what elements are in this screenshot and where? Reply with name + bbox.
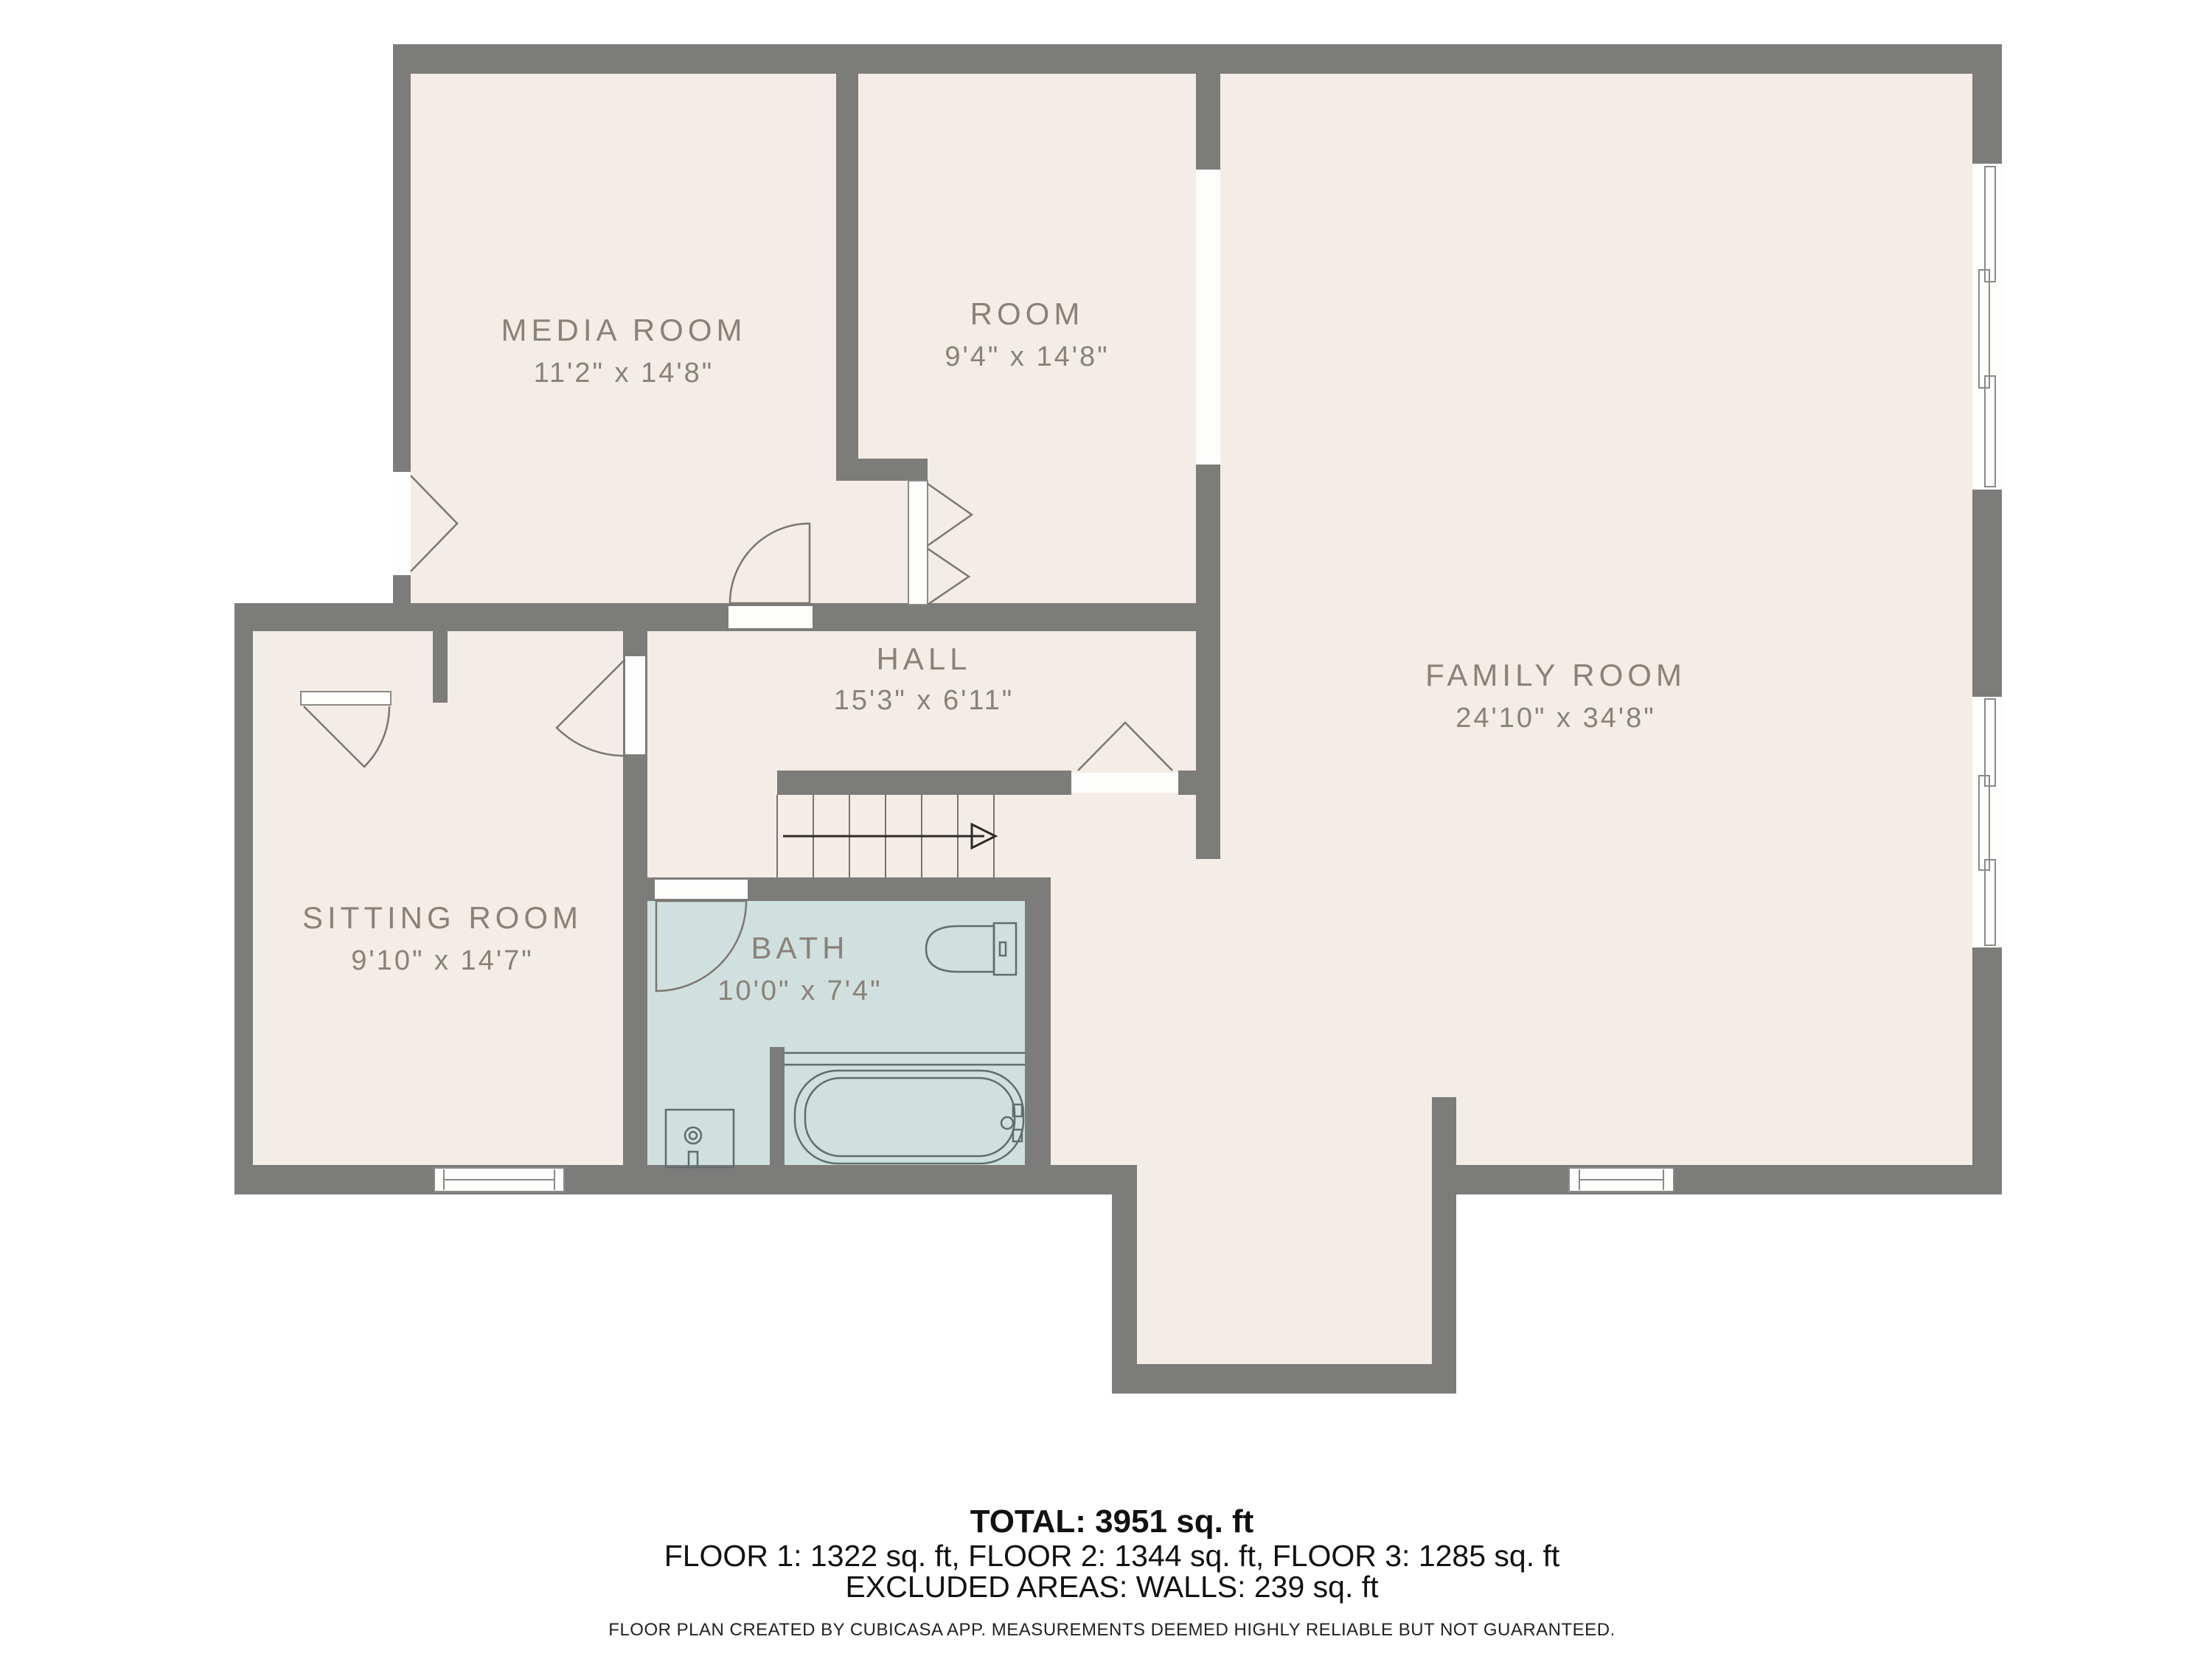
wall-divider-stub [836, 459, 928, 481]
excluded-areas-text: EXCLUDED AREAS: WALLS: 239 sq. ft [845, 1570, 1379, 1604]
floor-plan-page: MEDIA ROOM 11'2" x 14'8" ROOM 9'4" x 14'… [0, 0, 2212, 1659]
family-room-label: FAMILY ROOM [1425, 658, 1686, 692]
wall-stairs-top [777, 771, 1071, 795]
wall-media-room-divider [836, 74, 858, 459]
room-dims: 9'4" x 14'8" [945, 341, 1109, 372]
wall-closet-right [433, 630, 448, 703]
floor-areas-text: FLOOR 1: 1322 sq. ft, FLOOR 2: 1344 sq. … [664, 1539, 1560, 1573]
sitting-room-label: SITTING ROOM [302, 900, 582, 935]
wall-stairs-top-stub [1178, 771, 1196, 795]
window-sitting-bottom [434, 1168, 564, 1192]
wall-protrusion-left [1112, 1194, 1137, 1394]
wall-protrusion-right [1432, 1097, 1456, 1394]
bath-dims: 10'0" x 7'4" [717, 975, 882, 1006]
media-room-dims: 11'2" x 14'8" [534, 358, 714, 389]
window-family-right-lower [1972, 697, 2002, 947]
opening-hall-landing-door [1071, 773, 1178, 793]
wall-hall-top-band [234, 603, 1220, 631]
hall-label: HALL [876, 641, 971, 676]
wall-sink-stub [770, 1047, 785, 1165]
window-family-right-upper [1972, 164, 2002, 490]
opening-sitting-door [625, 656, 645, 754]
wall-bottom-right [1432, 1165, 2002, 1194]
door-leaf-closet-strip [301, 692, 391, 705]
wall-top [393, 44, 2002, 74]
room-label: ROOM [970, 296, 1085, 331]
media-room-label: MEDIA ROOM [501, 313, 746, 347]
total-area-text: TOTAL: 3951 sq. ft [970, 1503, 1254, 1540]
opening-media-entry [728, 606, 813, 628]
window-family-bottom [1569, 1168, 1674, 1192]
disclaimer-text: FLOOR PLAN CREATED BY CUBICASA APP. MEAS… [608, 1620, 1615, 1640]
door-leaf-room-strip [908, 481, 928, 605]
family-room-dims: 24'10" x 34'8" [1455, 703, 1656, 734]
opening-room-family [1196, 170, 1220, 465]
hall-dims: 15'3" x 6'11" [834, 685, 1015, 716]
floor-plan-canvas: MEDIA ROOM 11'2" x 14'8" ROOM 9'4" x 14'… [0, 0, 2212, 1659]
bath-label: BATH [751, 931, 849, 965]
sitting-room-dims: 9'10" x 14'7" [351, 945, 533, 976]
opening-bath-door [655, 880, 748, 899]
opening-media-left-door [393, 472, 411, 575]
wall-protrusion-bottom [1112, 1364, 1456, 1394]
wall-sitting-left [234, 603, 253, 1194]
footer-summary: TOTAL: 3951 sq. ft FLOOR 1: 1322 sq. ft,… [608, 1503, 1615, 1640]
wall-bottom-left [234, 1165, 1137, 1194]
wall-bath-right [1025, 877, 1051, 1165]
